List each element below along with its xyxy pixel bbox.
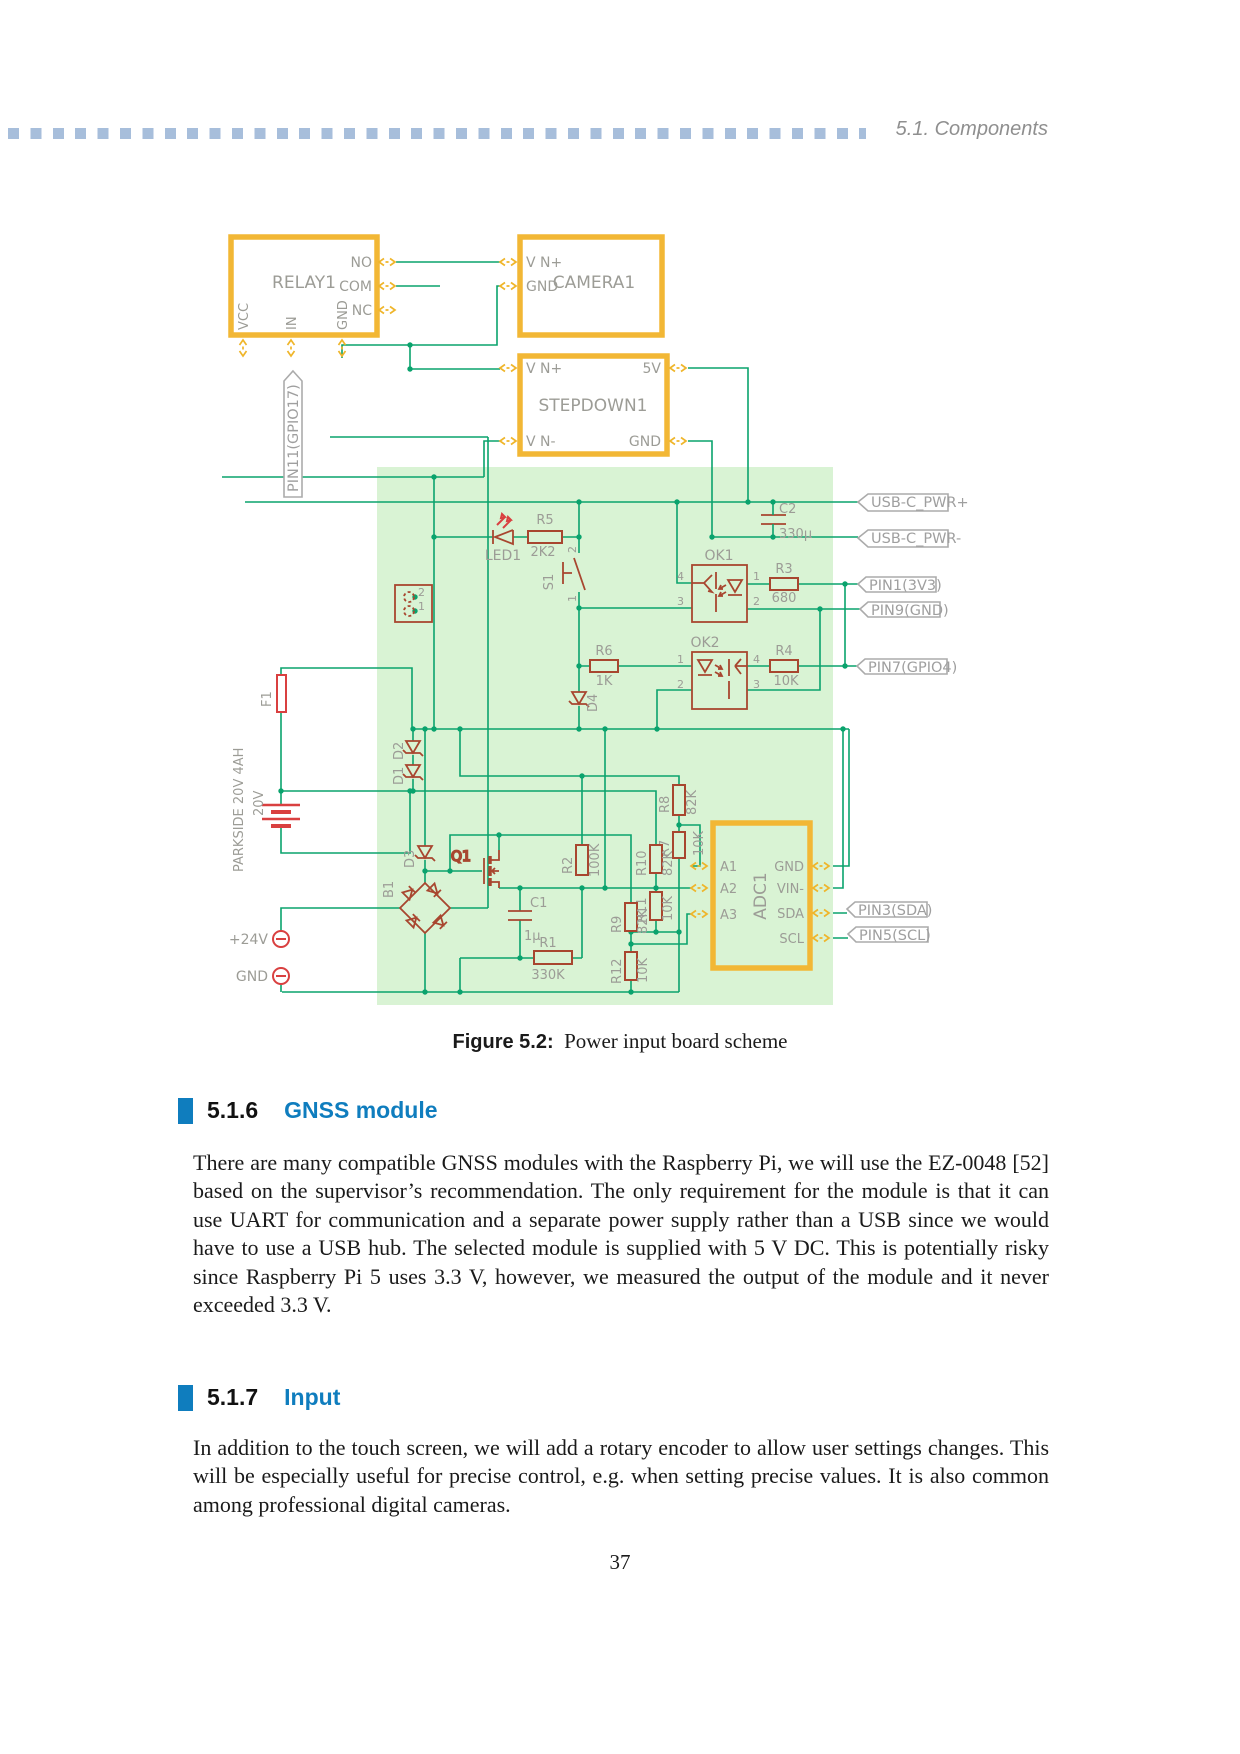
figure-caption-text: Power input board scheme: [559, 1029, 788, 1053]
svg-text:680: 680: [772, 591, 797, 606]
svg-text:OK2: OK2: [690, 635, 719, 651]
svg-text:RELAY1: RELAY1: [272, 273, 336, 293]
svg-text:1µ: 1µ: [524, 929, 541, 944]
section-title: GNSS module: [284, 1097, 437, 1124]
svg-text:OK1: OK1: [704, 548, 733, 564]
svg-text:A2: A2: [720, 882, 737, 897]
svg-text:2: 2: [566, 546, 579, 553]
svg-text:V N-: V N-: [526, 434, 556, 450]
svg-text:R9: R9: [610, 916, 625, 933]
svg-text:C1: C1: [530, 896, 547, 911]
svg-text:82K: 82K: [636, 908, 651, 934]
svg-text:NO: NO: [351, 255, 373, 271]
svg-text:PIN9(GND): PIN9(GND): [871, 603, 949, 619]
svg-text:PIN1(3V3): PIN1(3V3): [869, 578, 942, 594]
terminal-24v: +24V: [229, 931, 289, 948]
svg-text:D2: D2: [392, 742, 407, 760]
svg-text:R4: R4: [775, 644, 792, 659]
svg-text:VCC: VCC: [237, 303, 252, 330]
svg-text:GND: GND: [774, 860, 804, 875]
fuse-f1: [277, 675, 286, 712]
svg-text:SCL: SCL: [779, 932, 804, 947]
svg-text:PIN5(SCL): PIN5(SCL): [859, 928, 931, 944]
svg-text:IN: IN: [285, 316, 300, 330]
svg-text:R3: R3: [775, 562, 792, 577]
svg-text:COM: COM: [339, 279, 372, 295]
svg-text:3: 3: [753, 678, 760, 691]
section-number: 5.1.7: [207, 1384, 258, 1411]
svg-text:100K: 100K: [588, 843, 603, 877]
terminal-gnd: GND: [236, 968, 289, 985]
svg-text:1: 1: [566, 595, 579, 602]
section-heading-gnss: 5.1.6 GNSS module: [178, 1097, 438, 1124]
svg-text:USB-C_PWR+: USB-C_PWR+: [871, 495, 969, 511]
svg-text:1: 1: [418, 600, 425, 613]
figure-schematic: LED1 R5 2K2 S1 2 1 2 1: [0, 0, 1240, 1060]
paragraph-gnss: There are many compatible GNSS modules w…: [193, 1149, 1049, 1319]
svg-text:D4: D4: [586, 694, 601, 712]
svg-text:GND: GND: [236, 969, 268, 985]
svg-text:R10: R10: [635, 850, 650, 876]
section-number: 5.1.6: [207, 1097, 258, 1124]
svg-text:PIN7(GPIO4): PIN7(GPIO4): [868, 660, 957, 676]
svg-text:10K: 10K: [661, 895, 676, 921]
svg-text:PARKSIDE 20V 4AH: PARKSIDE 20V 4AH: [232, 748, 247, 872]
battery: [262, 805, 300, 826]
svg-text:1: 1: [753, 570, 760, 583]
svg-text:10K: 10K: [636, 957, 651, 983]
svg-text:2: 2: [418, 586, 425, 599]
svg-text:82K: 82K: [661, 850, 676, 876]
svg-text:ADC1: ADC1: [751, 872, 771, 919]
resistor-r8: [673, 785, 685, 815]
svg-text:USB-C_PWR-: USB-C_PWR-: [871, 531, 961, 547]
svg-text:4: 4: [677, 570, 684, 583]
svg-text:R12: R12: [610, 958, 625, 984]
svg-text:R1: R1: [539, 936, 556, 951]
svg-text:A3: A3: [720, 908, 737, 923]
resistor-r1: [534, 951, 572, 964]
svg-text:R2: R2: [561, 857, 576, 874]
svg-text:S1: S1: [542, 574, 557, 591]
svg-text:D3: D3: [403, 850, 418, 868]
svg-text:C2: C2: [779, 502, 796, 517]
section-heading-input: 5.1.7 Input: [178, 1384, 340, 1411]
svg-text:2: 2: [677, 678, 684, 691]
svg-text:F1: F1: [260, 691, 275, 707]
document-page: 5.1. Components: [0, 0, 1240, 1754]
svg-text:V N+: V N+: [526, 361, 562, 377]
svg-text:VIN-: VIN-: [777, 882, 804, 897]
resistor-r5: [528, 531, 562, 543]
section-title: Input: [284, 1384, 340, 1411]
section-marker-icon: [178, 1098, 193, 1124]
figure-caption-label: Figure 5.2:: [452, 1031, 553, 1053]
paragraph-input: In addition to the touch screen, we will…: [193, 1434, 1049, 1519]
svg-text:A1: A1: [720, 860, 737, 875]
svg-text:SDA: SDA: [777, 907, 804, 922]
svg-text:20V: 20V: [252, 790, 267, 816]
page-number: 37: [0, 1550, 1240, 1575]
svg-text:+24V: +24V: [229, 932, 269, 948]
svg-text:GND: GND: [336, 300, 351, 330]
svg-text:10K: 10K: [692, 830, 707, 856]
resistor-r6: [590, 660, 618, 672]
svg-text:LED1: LED1: [485, 548, 521, 564]
svg-text:1: 1: [677, 653, 684, 666]
svg-text:3: 3: [677, 595, 684, 608]
svg-text:D1: D1: [392, 767, 407, 785]
svg-text:5V: 5V: [643, 361, 662, 377]
svg-text:10K: 10K: [773, 674, 799, 689]
svg-text:CAMERA1: CAMERA1: [553, 273, 635, 293]
svg-text:STEPDOWN1: STEPDOWN1: [539, 396, 648, 416]
svg-text:NC: NC: [352, 303, 372, 319]
figure-caption: Figure 5.2: Power input board scheme: [0, 1029, 1240, 1054]
svg-text:82K: 82K: [685, 789, 700, 815]
svg-text:4: 4: [753, 653, 760, 666]
section-marker-icon: [178, 1385, 193, 1411]
svg-text:B1: B1: [382, 881, 397, 898]
svg-text:GND: GND: [629, 434, 661, 450]
svg-text:PIN11(GPIO17): PIN11(GPIO17): [286, 384, 302, 492]
relay-block: RELAY1 NO COM NC VCC IN GND: [231, 237, 377, 335]
svg-text:GND: GND: [526, 279, 558, 295]
svg-text:V N+: V N+: [526, 255, 562, 271]
resistor-r2: [576, 845, 588, 875]
svg-text:Q1: Q1: [451, 849, 471, 865]
svg-text:2: 2: [753, 595, 760, 608]
resistor-r4: [770, 660, 798, 672]
svg-text:R5: R5: [536, 513, 553, 528]
svg-text:R8: R8: [658, 796, 673, 813]
svg-text:PIN3(SDA): PIN3(SDA): [858, 903, 932, 919]
stepdown-block: STEPDOWN1 V N+ V N- 5V GND: [520, 356, 667, 454]
svg-text:330µ: 330µ: [779, 527, 812, 542]
svg-text:2K2: 2K2: [530, 545, 555, 560]
resistor-r3: [770, 578, 798, 590]
camera-block: CAMERA1 V N+ GND: [520, 237, 662, 335]
svg-text:R6: R6: [595, 644, 612, 659]
svg-text:330K: 330K: [531, 968, 565, 983]
svg-text:1K: 1K: [596, 674, 613, 689]
